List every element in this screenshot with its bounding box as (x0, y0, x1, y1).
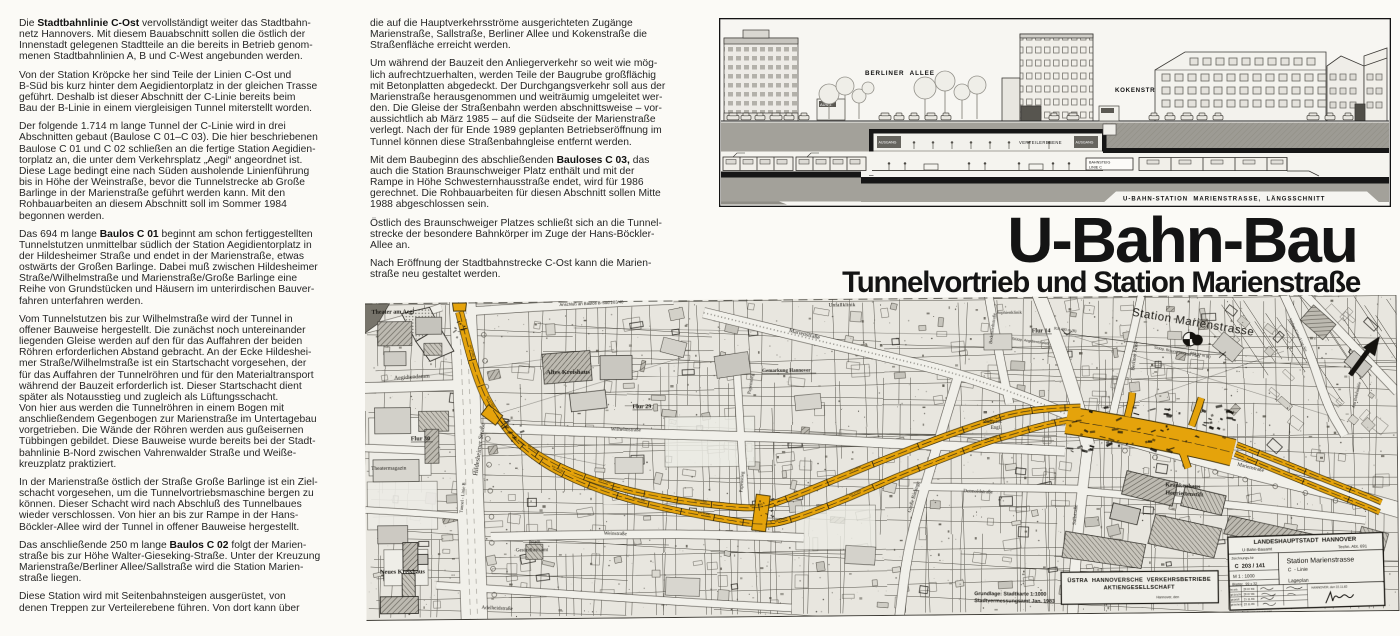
svg-text:Stadtvermessungsamt Jan. 1983: Stadtvermessungsamt Jan. 1983 (974, 598, 1055, 605)
svg-text:22.11.83: 22.11.83 (1244, 602, 1255, 606)
svg-text:gesehen: gesehen (1231, 602, 1242, 606)
svg-text:C - Linie: C - Linie (1288, 567, 1308, 574)
svg-text:geprüft: geprüft (1231, 597, 1240, 601)
svg-text:Unfallklinik: Unfallklinik (828, 301, 855, 308)
svg-text:bearb.: bearb. (1230, 587, 1238, 591)
svg-text:M 1 : 1000: M 1 : 1000 (1233, 573, 1255, 579)
svg-text:Zeichnungs-Nr: Zeichnungs-Nr (1231, 556, 1254, 561)
svg-text:BAHNSTEIG: BAHNSTEIG (1089, 161, 1110, 165)
svg-text:Adelheidstraße: Adelheidstraße (481, 604, 513, 612)
svg-text:Hannover, den: Hannover, den (1156, 595, 1179, 599)
svg-text:Altes Kreishaus: Altes Kreishaus (546, 369, 590, 376)
svg-text:AKTIENGESELLSCHAFT: AKTIENGESELLSCHAFT (1104, 585, 1176, 592)
svg-text:U-BAHN-STATION MARIENSTRASSE,: U-BAHN-STATION MARIENSTRASSE, LÄNGSSCHNI… (1123, 196, 1325, 203)
svg-text:Flur 30: Flur 30 (411, 435, 430, 442)
svg-text:LINIE C: LINIE C (1089, 166, 1102, 170)
svg-text:Grundlage: Stadtkarte 1:1000: Grundlage: Stadtkarte 1:1000 (974, 591, 1046, 598)
svg-text:U-Bahn-Bauamt: U-Bahn-Bauamt (1242, 546, 1273, 552)
svg-text:Stadt.: Stadt. (530, 540, 542, 545)
svg-text:VERTEILEREBENE: VERTEILEREBENE (1019, 140, 1062, 145)
svg-text:21.11.83: 21.11.83 (1244, 597, 1255, 601)
svg-text:AUSGANG: AUSGANG (1076, 141, 1094, 145)
svg-text:Stadtpark: Stadtpark (983, 420, 1003, 425)
svg-text:Engl.: Engl. (991, 426, 1002, 431)
svg-text:Wilhelmstraße: Wilhelmstraße (611, 426, 642, 434)
svg-text:Sophienklinik: Sophienklinik (997, 310, 1023, 315)
svg-text:AUSGANG: AUSGANG (879, 141, 897, 145)
svg-text:Lageplan: Lageplan (1288, 578, 1309, 585)
svg-text:Techn. Abt. 691: Techn. Abt. 691 (1338, 543, 1368, 549)
svg-text:Theatermagazin: Theatermagazin (371, 466, 407, 472)
svg-text:Neues Kreishaus: Neues Kreishaus (380, 568, 425, 575)
svg-text:KOKENSTR.: KOKENSTR. (1115, 87, 1158, 94)
svg-text:28.07.83: 28.07.83 (1243, 592, 1254, 596)
svg-text:BERLINER ALLEE: BERLINER ALLEE (865, 70, 935, 77)
svg-text:Theater am Aegi: Theater am Aegi (372, 309, 415, 315)
svg-text:C 203 / 141: C 203 / 141 (1235, 563, 1266, 570)
svg-text:gezeichn.: gezeichn. (1230, 592, 1242, 596)
svg-text:ÜSTRA HANNOVERSCHE VERKEHRSB: ÜSTRA HANNOVERSCHE VERKEHRSBETRIEBE (1067, 576, 1211, 584)
svg-text:Weinstraße: Weinstraße (604, 530, 628, 538)
svg-text:28.07.83: 28.07.83 (1243, 587, 1254, 591)
svg-text:Gesundheitsamt: Gesundheitsamt (516, 548, 549, 553)
